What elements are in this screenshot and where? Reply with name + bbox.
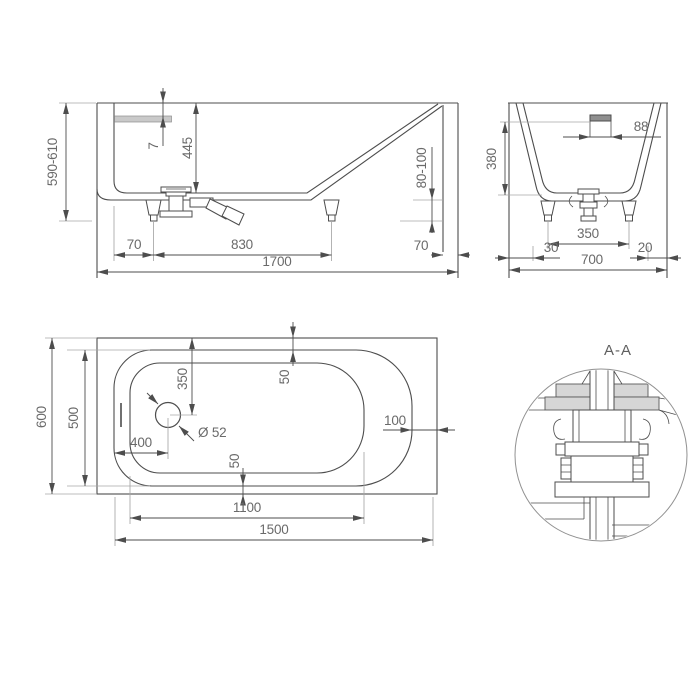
top-floor-edge	[130, 363, 364, 473]
dim-label-rim-gap-bottom: 50	[227, 454, 242, 469]
dim-side-right-foot-offset: 70	[414, 238, 470, 255]
dim-label-top-overall-length: 1500	[259, 522, 288, 537]
bathtub-technical-drawing: 590-610 7 445 80-100 70	[0, 0, 700, 700]
dim-label-end-left-offset: 30	[544, 240, 559, 255]
end-right-foot	[622, 201, 636, 221]
detail-title: A-A	[604, 342, 632, 359]
dim-label-drain-offset-top: 350	[175, 368, 190, 390]
dim-drain-diameter: Ø 52	[147, 393, 226, 441]
dim-label-rim-gap-right: 100	[384, 413, 406, 428]
dim-end-overflow-width: 88	[500, 119, 661, 137]
dim-top-rim-gap-right: 100	[383, 413, 455, 430]
dim-label-end-overall-width: 700	[581, 252, 603, 267]
dim-label-end-right-offset: 20	[638, 240, 653, 255]
side-tub-outline	[97, 103, 458, 278]
dim-label-left-foot-offset: 70	[127, 237, 142, 252]
dim-label-rim-gap-top: 50	[277, 370, 292, 385]
dim-label-drain-offset-left: 400	[130, 435, 152, 450]
dim-top-overall-width: 600	[34, 338, 96, 494]
end-view: 88 380 350 30 20 700	[484, 103, 681, 278]
dim-top-overall-length: 1500	[115, 497, 433, 546]
dim-side-left-foot-offset: 70	[114, 206, 154, 261]
side-left-foot	[146, 200, 161, 221]
dim-side-foot-height: 80-100	[400, 147, 443, 233]
dim-top-inner-width: 500	[66, 350, 150, 486]
dim-label-overall-length: 1700	[262, 254, 291, 269]
top-rim-inner-edge	[114, 350, 412, 486]
dim-end-right-offset: 20	[630, 240, 681, 261]
dim-label-rim-drop: 7	[146, 142, 161, 149]
dim-label-floor-length: 1100	[233, 500, 261, 515]
dim-label-top-overall-width: 600	[34, 406, 49, 428]
dim-label-foot-spacing: 830	[231, 237, 253, 252]
end-overflow-hole	[590, 115, 611, 137]
top-view: 600 500 350 50 400 Ø 52	[34, 322, 455, 546]
dim-side-height-range: 590-610	[45, 103, 96, 221]
dim-side-overall-length: 1700	[97, 254, 458, 272]
end-drain-assembly	[569, 189, 608, 221]
dim-side-foot-spacing: 830	[154, 222, 332, 261]
detail-view: A-A	[515, 342, 687, 546]
dim-end-foot-spacing: 350	[548, 222, 629, 249]
side-right-foot	[324, 200, 339, 221]
end-left-foot	[541, 201, 555, 221]
dim-label-end-foot-spacing: 350	[577, 226, 599, 241]
dim-label-overflow-width: 88	[634, 119, 649, 134]
dim-end-inner-depth: 380	[484, 122, 542, 195]
dim-label-end-inner-depth: 380	[484, 148, 499, 170]
dim-label-top-inner-width: 500	[66, 407, 81, 429]
drawing-canvas: 590-610 7 445 80-100 70	[0, 0, 700, 700]
dim-top-floor-length: 1100	[130, 452, 364, 524]
dim-side-inner-depth: 445	[180, 103, 196, 193]
dim-top-rim-gap-top: 50	[277, 322, 293, 384]
dim-label-height-range: 590-610	[45, 138, 60, 186]
side-view: 590-610 7 445 80-100 70	[45, 88, 470, 278]
dim-label-inner-depth: 445	[180, 137, 195, 159]
dim-label-right-foot-offset: 70	[414, 238, 429, 253]
dim-end-left-offset: 30	[495, 240, 560, 261]
dim-label-foot-height: 80-100	[414, 148, 429, 189]
dim-label-drain-diameter: Ø 52	[198, 425, 226, 440]
